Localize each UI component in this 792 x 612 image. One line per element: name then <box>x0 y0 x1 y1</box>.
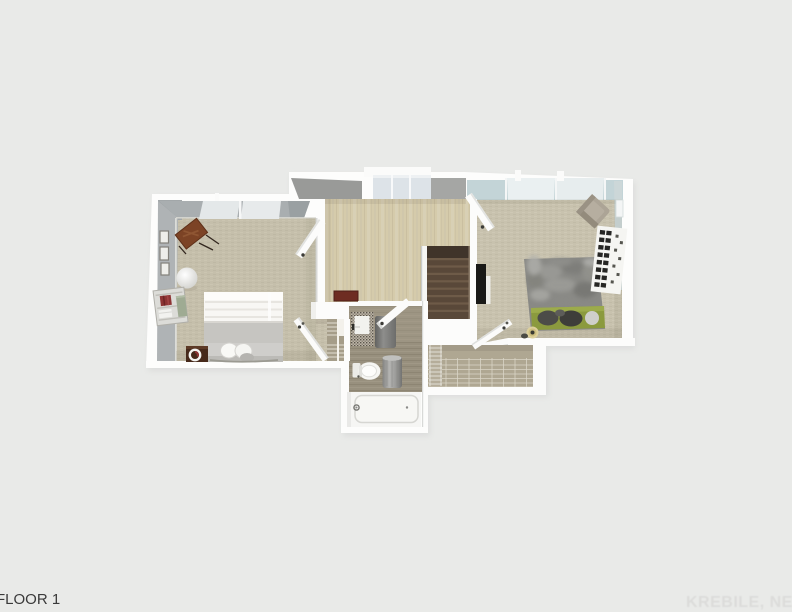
svg-text:FLOOR 1: FLOOR 1 <box>0 591 60 608</box>
svg-text:KREBILE, NE: KREBILE, NE <box>686 594 792 611</box>
